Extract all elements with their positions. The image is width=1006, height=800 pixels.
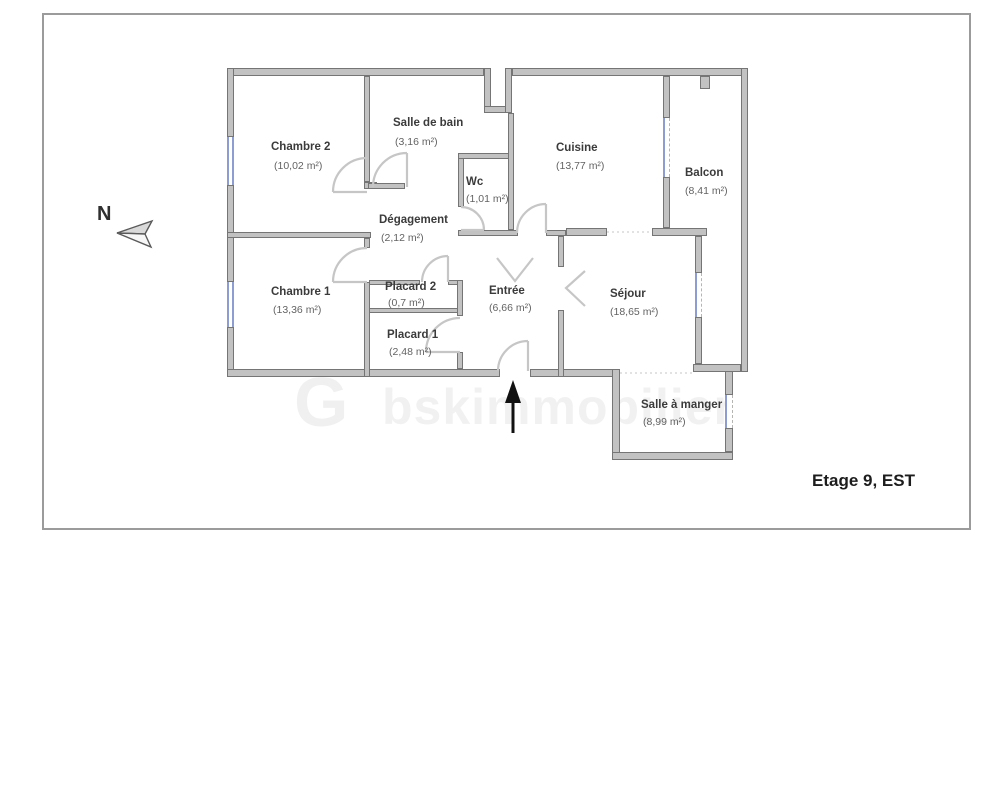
wall-segment bbox=[725, 428, 733, 452]
wall-segment bbox=[741, 68, 748, 372]
wall-segment bbox=[457, 352, 463, 369]
room-label-salle-a-manger: Salle à manger bbox=[641, 399, 722, 411]
room-label-wc: Wc bbox=[466, 176, 483, 188]
window-salle-a-manger bbox=[725, 395, 733, 428]
room-area-cuisine: (13,77 m²) bbox=[556, 160, 604, 172]
room-area-placard1: (2,48 m²) bbox=[389, 346, 432, 358]
wall-segment bbox=[505, 68, 512, 113]
wall-segment bbox=[458, 153, 464, 207]
window-chambre2 bbox=[227, 137, 234, 185]
floor-plan-page: { "title": "Etage 9, EST", "compass": { … bbox=[0, 0, 1006, 800]
window-sejour-balcon bbox=[695, 273, 702, 317]
wall-segment bbox=[457, 280, 463, 316]
wall-segment bbox=[663, 76, 670, 118]
room-area-chambre1: (13,36 m²) bbox=[273, 304, 321, 316]
wall-segment bbox=[558, 236, 564, 267]
wall-segment bbox=[693, 364, 741, 372]
room-label-salle-de-bain: Salle de bain bbox=[393, 117, 463, 129]
wall-segment bbox=[458, 153, 512, 159]
wall-segment bbox=[612, 369, 620, 460]
wall-segment bbox=[368, 183, 405, 189]
room-area-sejour: (18,65 m²) bbox=[610, 306, 658, 318]
wall-segment bbox=[458, 230, 518, 236]
wall-segment bbox=[508, 113, 514, 230]
wall-segment bbox=[700, 76, 710, 89]
room-label-entree: Entrée bbox=[489, 285, 525, 297]
room-label-placard2: Placard 2 bbox=[385, 281, 436, 293]
wall-segment bbox=[725, 370, 733, 395]
window-cuisine-balcon bbox=[663, 118, 670, 177]
room-label-chambre1: Chambre 1 bbox=[271, 286, 330, 298]
wall-segment bbox=[663, 177, 670, 228]
room-label-degagement: Dégagement bbox=[379, 214, 448, 226]
room-area-wc: (1,01 m²) bbox=[466, 193, 509, 205]
wall-segment bbox=[512, 68, 748, 76]
wall-segment bbox=[566, 228, 607, 236]
wall-segment bbox=[695, 317, 702, 364]
wall-segment bbox=[652, 228, 707, 236]
wall-segment bbox=[227, 232, 371, 238]
room-area-degagement: (2,12 m²) bbox=[381, 232, 424, 244]
wall-segment bbox=[364, 76, 370, 182]
wall-segment bbox=[364, 282, 370, 377]
wall-segment bbox=[364, 238, 370, 248]
wall-segment bbox=[227, 68, 234, 137]
room-area-chambre2: (10,02 m²) bbox=[274, 160, 322, 172]
window-chambre1 bbox=[227, 282, 234, 327]
wall-segment bbox=[227, 68, 484, 76]
room-area-entree: (6,66 m²) bbox=[489, 302, 532, 314]
room-label-cuisine: Cuisine bbox=[556, 142, 598, 154]
floor-caption: Etage 9, EST bbox=[812, 471, 915, 491]
room-label-chambre2: Chambre 2 bbox=[271, 141, 330, 153]
room-area-salle-a-manger: (8,99 m²) bbox=[643, 416, 686, 428]
wall-segment bbox=[558, 310, 564, 377]
wall-segment bbox=[612, 452, 733, 460]
room-area-salle-de-bain: (3,16 m²) bbox=[395, 136, 438, 148]
wall-segment bbox=[695, 236, 702, 273]
room-label-sejour: Séjour bbox=[610, 288, 646, 300]
room-label-balcon: Balcon bbox=[685, 167, 723, 179]
compass-north-label: N bbox=[97, 203, 111, 226]
room-area-balcon: (8,41 m²) bbox=[685, 185, 728, 197]
wall-segment bbox=[530, 369, 620, 377]
room-label-placard1: Placard 1 bbox=[387, 329, 438, 341]
room-area-placard2: (0,7 m²) bbox=[388, 297, 425, 309]
